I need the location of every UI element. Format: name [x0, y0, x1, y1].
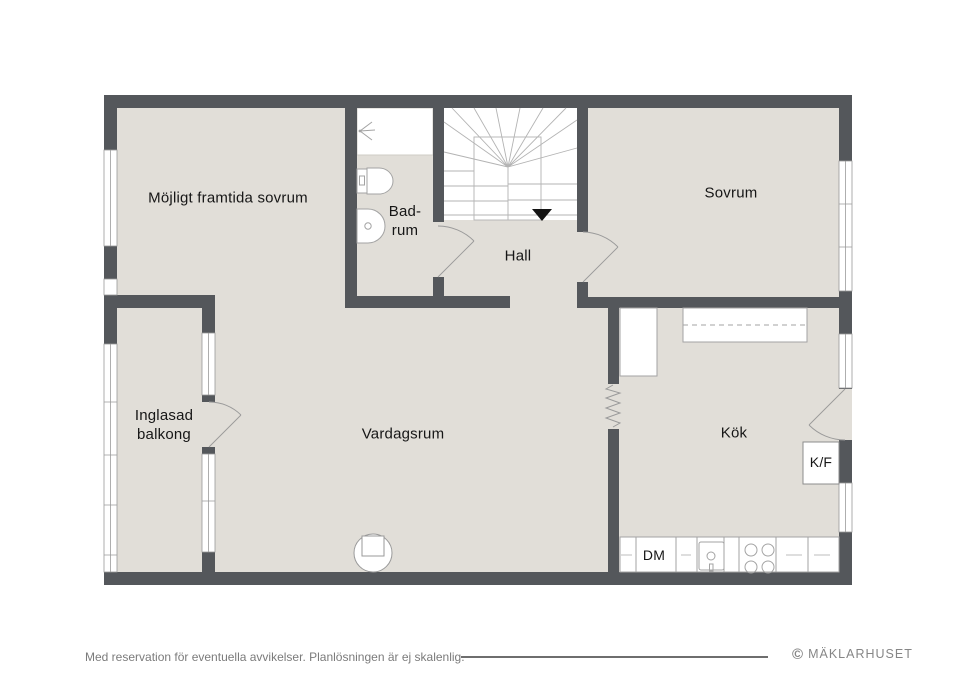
- copyright-icon: ©: [792, 647, 803, 662]
- fireplace-icon: [354, 534, 392, 572]
- disclaimer-text: Med reservation för eventuella avvikelse…: [85, 650, 465, 664]
- shower-area: [357, 108, 433, 155]
- wall-top: [104, 95, 852, 108]
- wall-balcony-right-lower: [202, 552, 215, 572]
- toilet-icon: [357, 168, 393, 194]
- wall-bottom: [104, 572, 852, 585]
- room-label-kitchen: Kök: [721, 423, 747, 442]
- wall-kitchen-top: [577, 297, 852, 308]
- wall-kitchen-left-lower: [608, 429, 619, 572]
- wall-bathroom-right: [433, 95, 444, 222]
- appliance-label-fridge-freezer: K/F: [810, 454, 832, 472]
- footer: Med reservation för eventuella avvikelse…: [0, 644, 960, 674]
- wall-balcony-door-stub-top: [202, 395, 215, 402]
- room-label-balcony: Inglasad balkong: [135, 406, 193, 444]
- wall-bathroom-door-stub: [433, 277, 444, 308]
- brand-name: MÄKLARHUSET: [808, 648, 913, 661]
- floorplan-page: Möjligt framtida sovrum Bad- rum Hall So…: [0, 0, 960, 679]
- kitchen-tall-cabinet: [620, 308, 657, 376]
- wall-balcony-top: [104, 295, 215, 308]
- room-label-bathroom: Bad- rum: [389, 202, 422, 240]
- wall-hall-south: [345, 296, 510, 308]
- brand-logo: © MÄKLARHUSET: [792, 647, 913, 662]
- appliance-label-dishwasher: DM: [643, 547, 665, 565]
- floorplan-drawing: [0, 0, 960, 679]
- room-label-hall: Hall: [505, 246, 532, 265]
- wall-balcony-door-stub-bottom: [202, 447, 215, 454]
- bathroom-sink-icon: [357, 209, 385, 243]
- wall-balcony-right-upper: [202, 295, 215, 333]
- window-left-small: [104, 279, 117, 295]
- kitchen-exterior-door-gap: [839, 389, 852, 440]
- room-label-living-room: Vardagsrum: [362, 424, 445, 443]
- footer-divider-line: [461, 656, 768, 658]
- wall-kitchen-left-upper: [608, 308, 619, 384]
- wall-bathroom-left: [345, 95, 357, 308]
- room-label-bedroom: Sovrum: [705, 183, 758, 202]
- wall-bedroom-left: [577, 95, 588, 232]
- room-label-future-bedroom: Möjligt framtida sovrum: [148, 188, 308, 207]
